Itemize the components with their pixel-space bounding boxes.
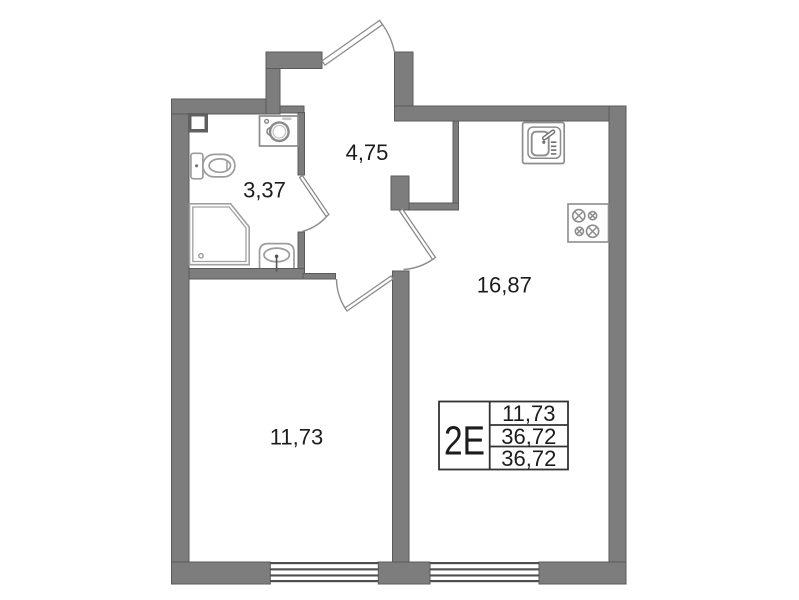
svg-text:11,73: 11,73 [270,424,323,449]
svg-text:2E: 2E [444,418,485,464]
svg-text:11,73: 11,73 [502,401,555,426]
svg-text:16,87: 16,87 [477,272,532,297]
svg-text:3,37: 3,37 [243,177,286,202]
svg-text:36,72: 36,72 [501,446,556,471]
svg-text:4,75: 4,75 [346,140,389,165]
